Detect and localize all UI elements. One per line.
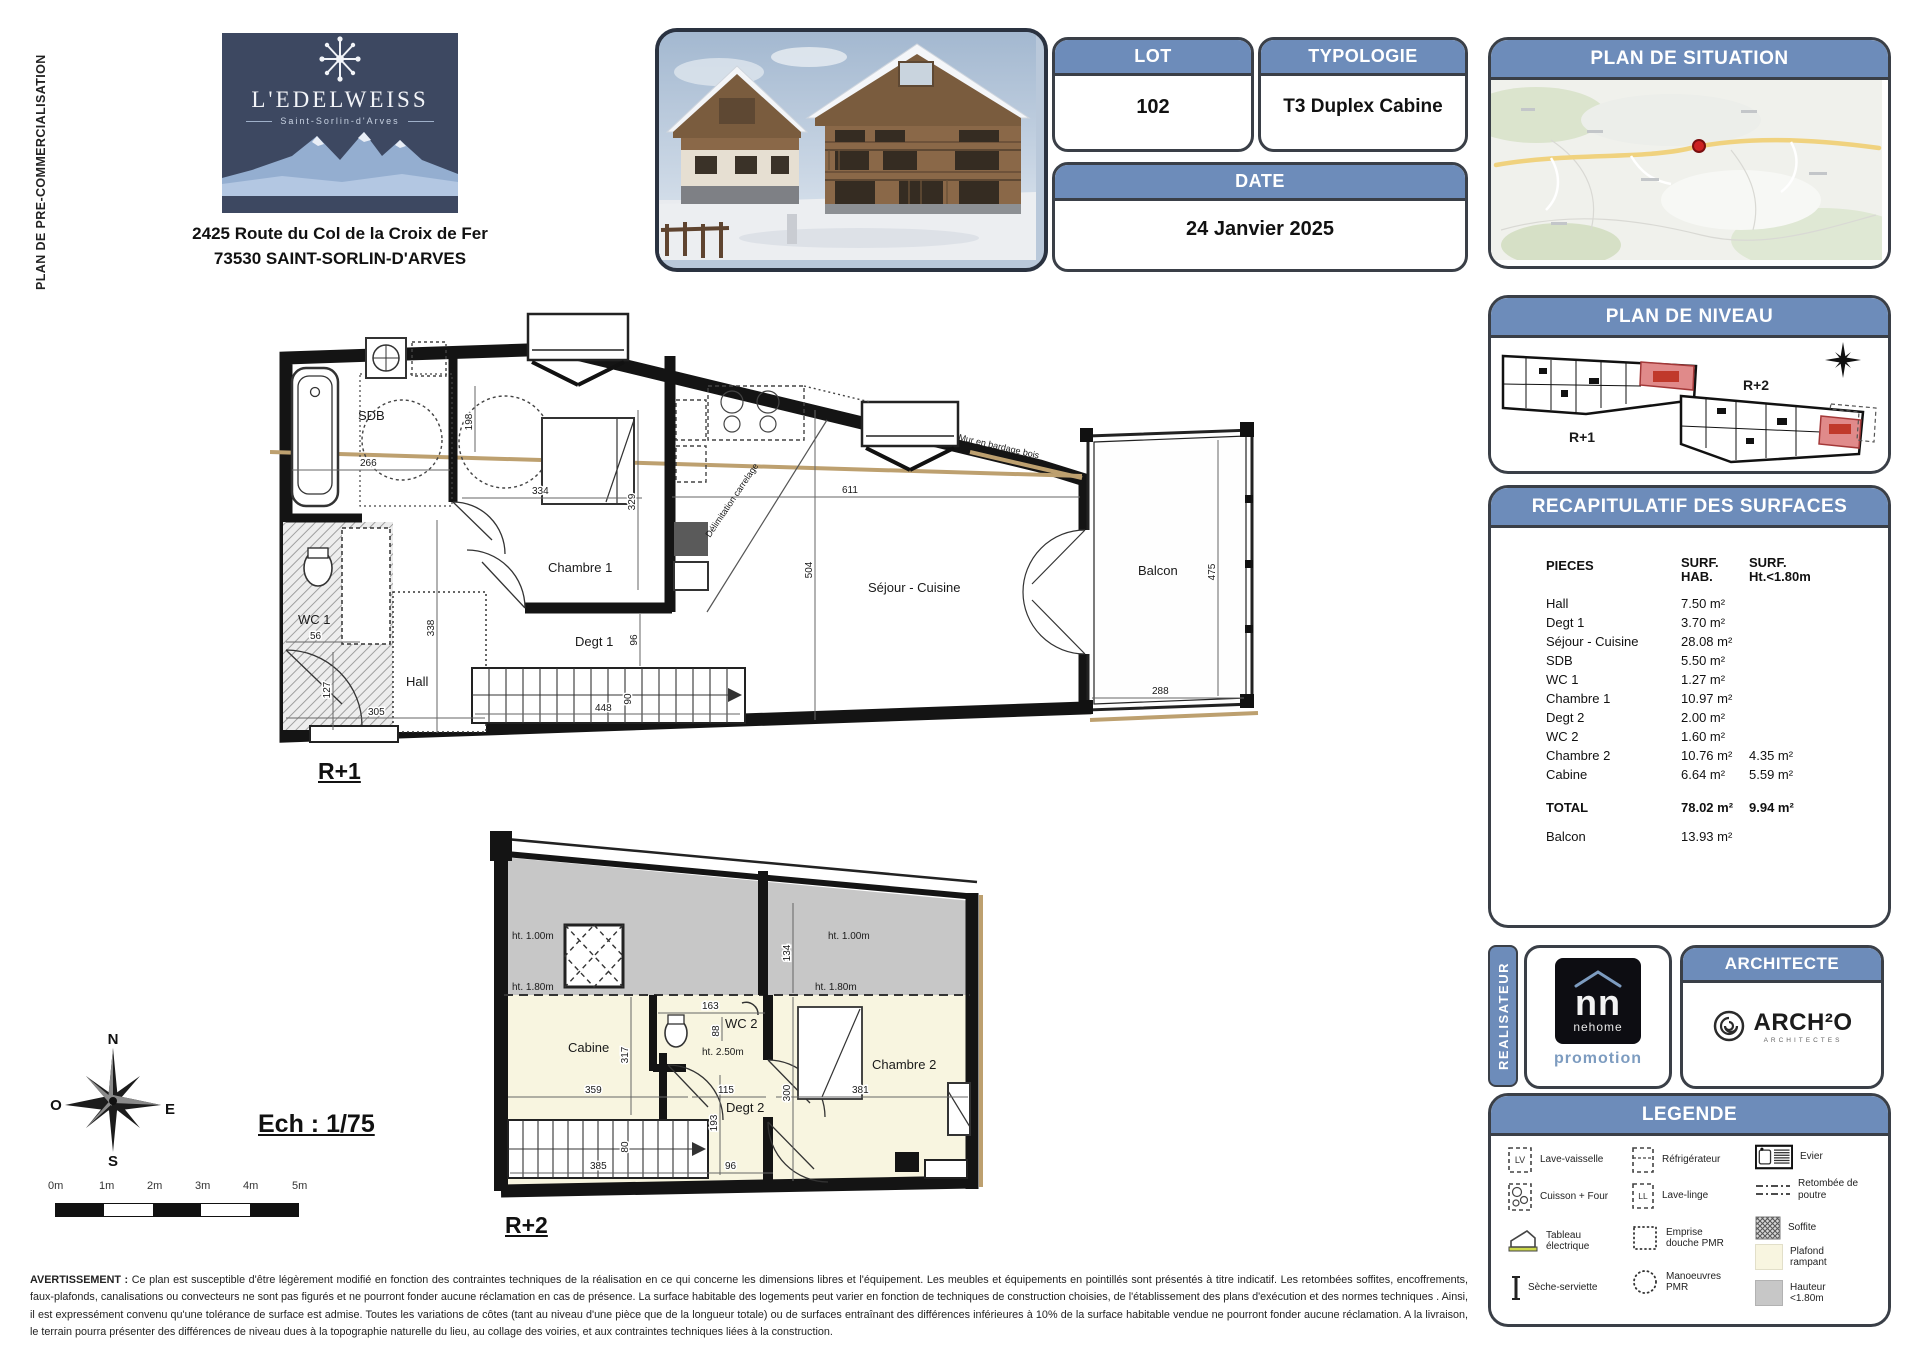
legend-item: Sèche-serviette: [1511, 1274, 1597, 1302]
legend-item: Retombée de poutre: [1755, 1178, 1860, 1201]
dim: 338: [426, 619, 437, 636]
table-row: WC 11.27 m²: [1546, 670, 1876, 689]
compass-s: S: [108, 1153, 118, 1168]
lot-box: LOT 102: [1052, 37, 1254, 152]
dim: 163: [702, 1001, 719, 1012]
hauteur-swatch: [1755, 1280, 1783, 1306]
table-row: Degt 13.70 m²: [1546, 613, 1876, 632]
surfaces-title: RECAPITULATIF DES SURFACES: [1491, 488, 1888, 528]
dim: 288: [1152, 686, 1169, 697]
surfaces-panel: RECAPITULATIF DES SURFACES PIECES SURF.H…: [1488, 485, 1891, 928]
legend-item: Tableau électrique: [1507, 1228, 1616, 1254]
dim: 381: [852, 1085, 869, 1096]
project-logo: L'EDELWEISS Saint-Sorlin-d'Arves: [222, 33, 458, 213]
r2-stairs: [508, 1120, 708, 1178]
architecte-panel: ARCHITECTE ARCH²O ARCHITECTES: [1680, 945, 1884, 1089]
legend-item: Manoeuvres PMR: [1631, 1268, 1732, 1296]
table-row: Chambre 110.97 m²: [1546, 689, 1876, 708]
location-marker: [1693, 140, 1705, 152]
compass-rose-icon: N S E O: [48, 1032, 178, 1168]
dim: 80: [620, 1141, 631, 1153]
table-total-row: TOTAL78.02 m²9.94 m²: [1546, 798, 1876, 817]
niveau-panel: PLAN DE NIVEAU R+1: [1488, 295, 1891, 474]
retombee-poutre-icon: [1755, 1182, 1791, 1198]
svg-text:LV: LV: [1515, 1155, 1525, 1165]
mountains-graphic: [222, 130, 458, 196]
lave-vaisselle-icon: LV: [1507, 1146, 1533, 1174]
legend-item: Hauteur <1.80m: [1755, 1280, 1852, 1306]
dim: 90: [623, 693, 634, 705]
ht100-right: ht. 1.00m: [828, 931, 870, 942]
date-box: DATE 24 Janvier 2025: [1052, 162, 1468, 272]
soffite-icon: [1755, 1216, 1781, 1240]
dim: 504: [804, 561, 815, 578]
edelweiss-icon: [315, 33, 365, 85]
table-row: Hall7.50 m²: [1546, 594, 1876, 613]
r1-sink: [674, 562, 708, 590]
r1-closet: [342, 528, 390, 644]
r1-bathtub: [292, 368, 338, 506]
legend-item: Emprise douche PMR: [1631, 1224, 1732, 1252]
surfaces-table: PIECES SURF.HAB. SURF.Ht.<1.80m Hall7.50…: [1546, 556, 1876, 846]
r1-bed: [542, 418, 634, 504]
legend-item: Réfrigérateur: [1631, 1146, 1720, 1174]
architecte-brand: ARCH²O: [1754, 1009, 1853, 1037]
architecte-sub: ARCHITECTES: [1754, 1037, 1853, 1044]
dim: 198: [464, 413, 475, 430]
scale-bar: [55, 1203, 299, 1217]
floor-plan-r2: Cabine WC 2 Degt 2 Chambre 2 ht. 1.00m h…: [480, 825, 1120, 1255]
room-label-sejour: Séjour - Cuisine: [868, 580, 961, 595]
chalet-render: [659, 32, 1036, 260]
dim: 300: [782, 1084, 793, 1101]
compass-e: E: [165, 1101, 175, 1118]
situation-map: [1491, 80, 1882, 260]
archo-spiral-icon: [1712, 1009, 1746, 1043]
scale-label: Ech : 1/75: [258, 1110, 375, 1139]
legende-title: LEGENDE: [1491, 1096, 1888, 1136]
plan-document: PLAN DE PRE-COMMERCIALISATION L'EDELWEIS…: [0, 0, 1920, 1356]
dim: 115: [718, 1085, 734, 1096]
cuisson-four-icon: [1507, 1182, 1533, 1212]
dim: 56: [310, 631, 322, 642]
table-balcon-row: Balcon13.93 m²: [1546, 827, 1876, 846]
dim: 359: [585, 1085, 602, 1096]
emprise-douche-icon: [1631, 1224, 1659, 1252]
situation-title: PLAN DE SITUATION: [1491, 40, 1888, 80]
table-row: WC 21.60 m²: [1546, 727, 1876, 746]
room-label-wc2: WC 2: [725, 1016, 758, 1031]
realisateur-panel: nn nehome promotion: [1524, 945, 1672, 1089]
dim: 334: [532, 486, 549, 497]
building-photo: [655, 28, 1048, 272]
niveau-r2-label: R+2: [1743, 377, 1769, 393]
r1-washer-icon: [366, 338, 406, 378]
room-label-balcon: Balcon: [1138, 563, 1178, 578]
situation-panel: PLAN DE SITUATION: [1488, 37, 1891, 269]
room-label-cabine: Cabine: [568, 1040, 609, 1055]
floor-plan-r1: SDB WC 1 Hall Chambre 1 Degt 1 Séjour - …: [270, 290, 1300, 790]
legend-item: Cuisson + Four: [1507, 1182, 1608, 1212]
legend-item: LV Lave-vaisselle: [1507, 1146, 1603, 1174]
compass-n: N: [108, 1032, 119, 1048]
side-label: PLAN DE PRE-COMMERCIALISATION: [34, 40, 48, 290]
project-location: Saint-Sorlin-d'Arves: [246, 116, 433, 126]
compass-o: O: [50, 1097, 62, 1114]
ht100-left: ht. 1.00m: [512, 931, 554, 942]
dim: 134: [782, 944, 793, 961]
room-label-chambre2: Chambre 2: [872, 1057, 936, 1072]
table-row: Séjour - Cuisine28.08 m²: [1546, 632, 1876, 651]
legende-panel: LEGENDE LV Lave-vaisselle Cuisson + Four: [1488, 1093, 1891, 1327]
date-label: DATE: [1055, 165, 1465, 201]
dim: 96: [725, 1161, 737, 1172]
niveau-graphic: R+1 R+2: [1491, 338, 1882, 465]
plafond-rampant-swatch: [1755, 1244, 1783, 1270]
typologie-label: TYPOLOGIE: [1261, 40, 1465, 76]
legend-item: LL Lave-linge: [1631, 1182, 1708, 1210]
legend-item: Evier: [1755, 1144, 1823, 1170]
typologie-box: TYPOLOGIE T3 Duplex Cabine: [1258, 37, 1468, 152]
room-label-degt1: Degt 1: [575, 634, 613, 649]
dim: 317: [620, 1046, 631, 1063]
project-address: 2425 Route du Col de la Croix de Fer 735…: [140, 222, 540, 271]
ht180-right: ht. 1.80m: [815, 982, 857, 993]
niveau-r1-label: R+1: [1569, 429, 1595, 445]
tableau-electrique-icon: [1507, 1228, 1539, 1254]
realisateur-bar: REALISATEUR: [1488, 945, 1518, 1087]
nehome-logo: nn nehome: [1555, 958, 1641, 1044]
table-row: Chambre 210.76 m²4.35 m²: [1546, 746, 1876, 765]
dim: 193: [709, 1114, 720, 1131]
r1-plan-label: R+1: [318, 758, 361, 785]
r1-shower: [674, 522, 708, 556]
r2-roof-window: [565, 925, 623, 987]
r1-stairs: [472, 668, 745, 723]
dim: 385: [590, 1161, 607, 1172]
legend-item: Soffite: [1755, 1216, 1816, 1240]
ht250: ht. 2.50m: [702, 1047, 744, 1058]
table-row: Degt 22.00 m²: [1546, 708, 1876, 727]
dim: 611: [842, 485, 858, 496]
dim: 329: [627, 493, 638, 510]
manoeuvres-pmr-icon: [1631, 1268, 1659, 1296]
refrigerateur-icon: [1631, 1146, 1655, 1174]
r2-plan-label: R+2: [505, 1212, 548, 1239]
svg-text:LL: LL: [1638, 1191, 1648, 1201]
room-label-wc1: WC 1: [298, 612, 331, 627]
table-row: Cabine6.64 m²5.59 m²: [1546, 765, 1876, 784]
evier-icon: [1755, 1144, 1793, 1170]
r1-balcony-door-gap: [1076, 530, 1092, 654]
dim: 127: [322, 681, 333, 698]
typologie-value: T3 Duplex Cabine: [1261, 76, 1465, 138]
dim: 448: [595, 703, 612, 714]
legend-item: Plafond rampant: [1755, 1244, 1852, 1270]
lot-label: LOT: [1055, 40, 1251, 76]
architecte-title: ARCHITECTE: [1683, 948, 1881, 983]
dim: 88: [711, 1025, 722, 1037]
niveau-title: PLAN DE NIVEAU: [1491, 298, 1888, 338]
seche-serviette-icon: [1511, 1274, 1521, 1302]
room-label-degt2: Degt 2: [726, 1100, 764, 1115]
table-row: SDB5.50 m²: [1546, 651, 1876, 670]
r2-toilet: [665, 1015, 687, 1047]
north-star-icon: [1825, 342, 1861, 378]
room-label-chambre1: Chambre 1: [548, 560, 612, 575]
ht180-left: ht. 1.80m: [512, 982, 554, 993]
dim: 475: [1207, 563, 1218, 580]
r1-toilet: [304, 548, 332, 586]
lave-linge-icon: LL: [1631, 1182, 1655, 1210]
room-label-hall: Hall: [406, 674, 429, 689]
disclaimer: AVERTISSEMENT : Ce plan est susceptible …: [30, 1272, 1468, 1341]
project-name: L'EDELWEISS: [251, 87, 428, 113]
dim: 266: [360, 458, 377, 469]
room-label-sdb: SDB: [358, 408, 385, 423]
dim: 305: [368, 707, 385, 718]
col-pieces: PIECES: [1546, 556, 1681, 584]
date-value: 24 Janvier 2025: [1055, 201, 1465, 257]
dim: 96: [629, 634, 640, 646]
lot-value: 102: [1055, 76, 1251, 138]
